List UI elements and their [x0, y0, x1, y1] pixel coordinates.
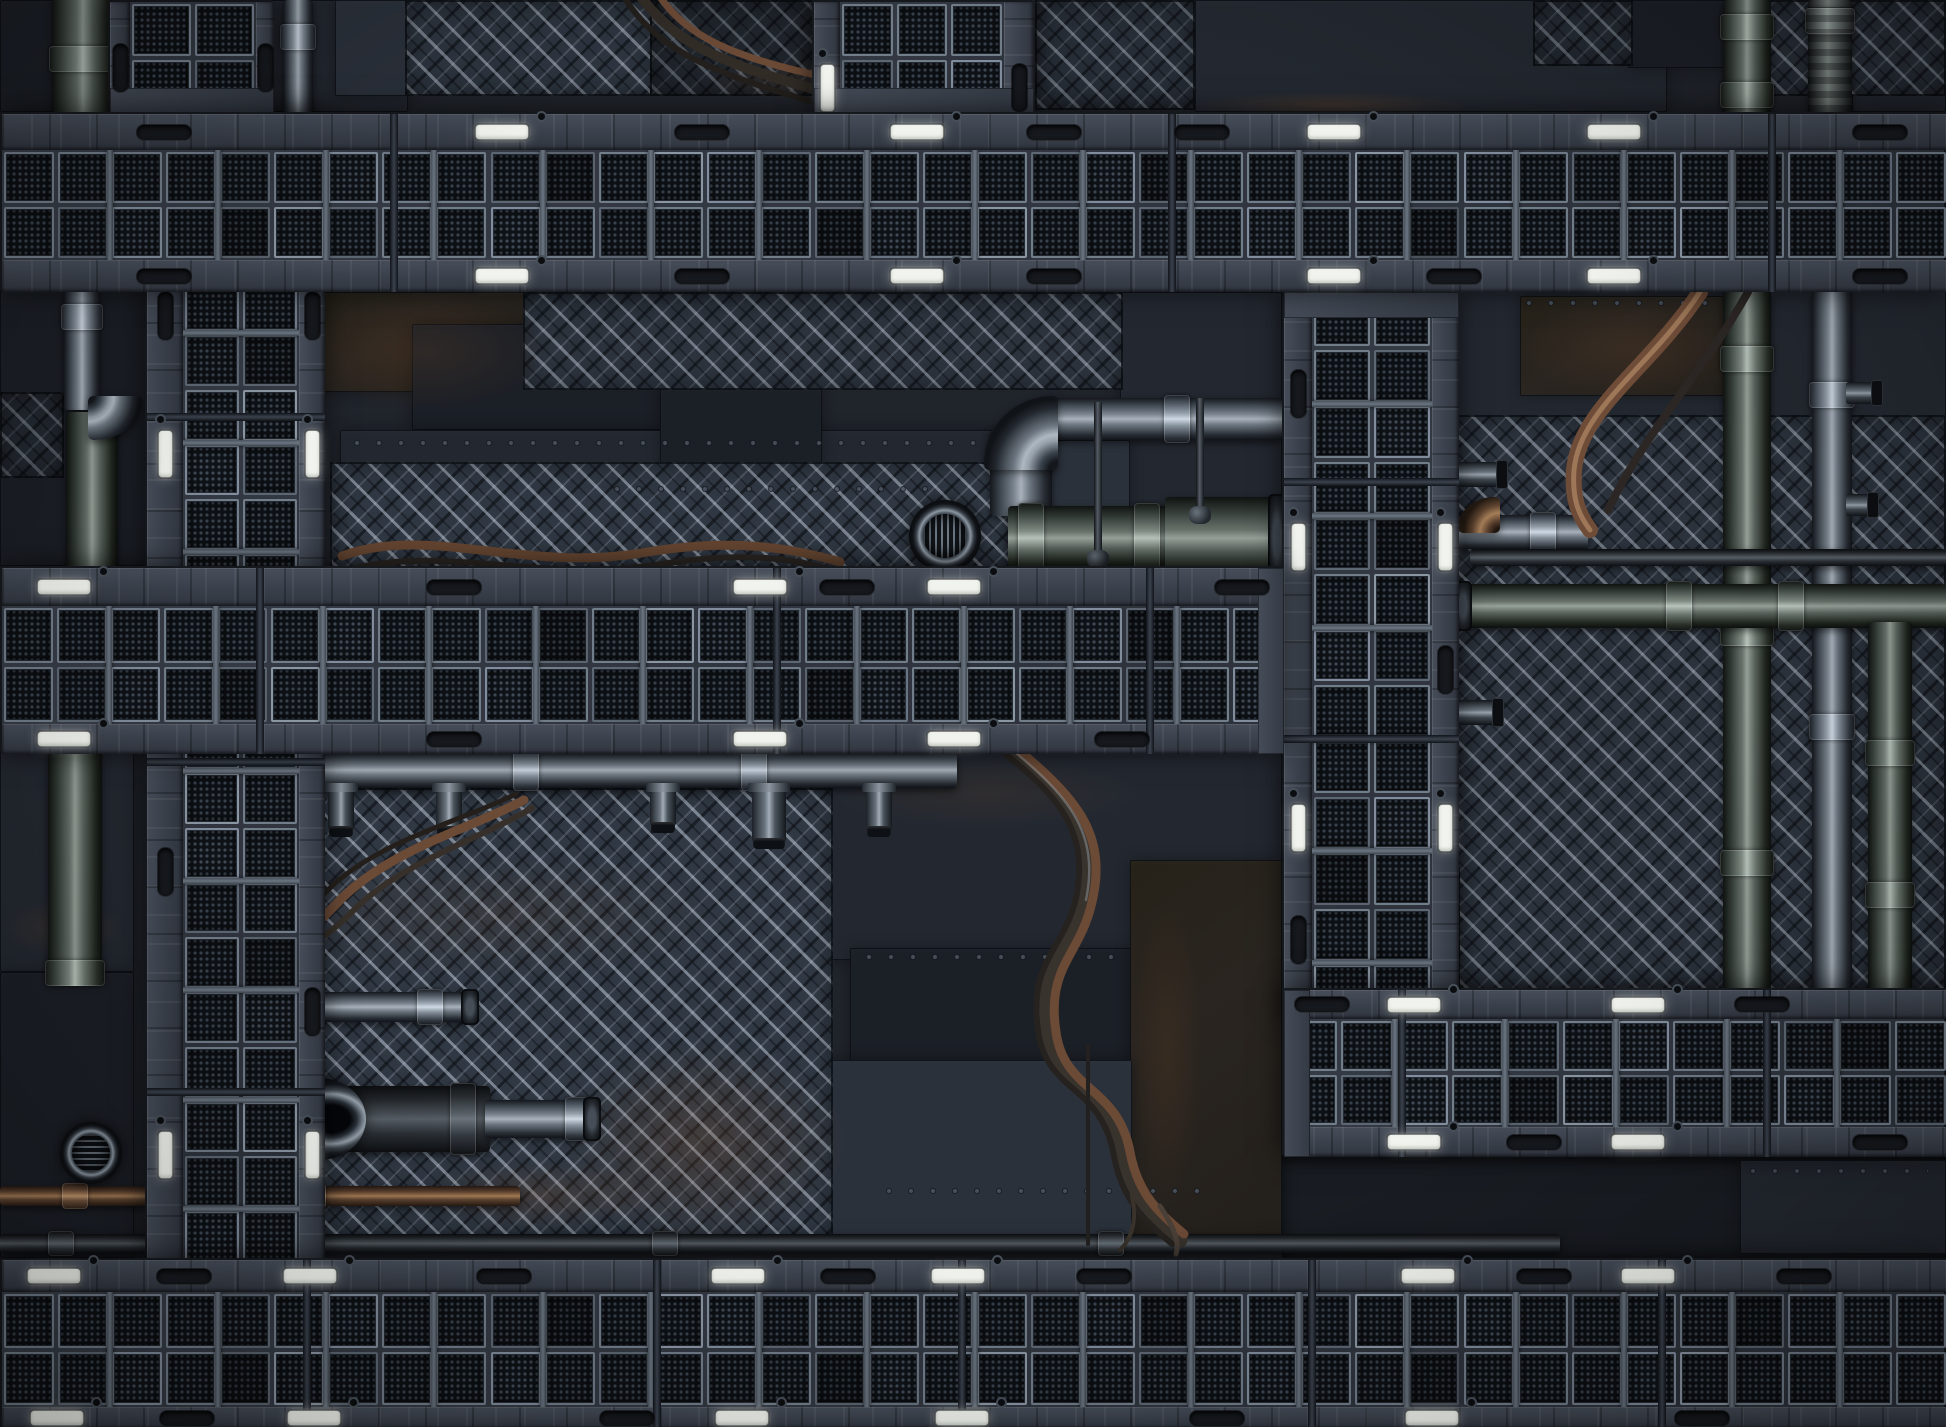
- mesh-grate-cell: [112, 1294, 162, 1348]
- mesh-grate-cell: [545, 152, 595, 203]
- module-seam: [958, 1260, 966, 1427]
- walkway-end-rail: [110, 88, 274, 114]
- mesh-grate-cell: [1193, 207, 1243, 258]
- mesh-grate-cell: [57, 667, 106, 722]
- mesh-grate-cell: [1409, 207, 1459, 258]
- mesh-grate-cell: [58, 1352, 108, 1406]
- mesh-grate-cell: [1314, 350, 1370, 402]
- mesh-grate-cell: [545, 207, 595, 258]
- mesh-grate-cell: [491, 1352, 541, 1406]
- mesh-grate-cell: [1085, 152, 1135, 203]
- panel-divider: [1513, 1292, 1519, 1407]
- recessed-slot: [427, 732, 481, 747]
- mesh-grate-cell: [328, 207, 378, 258]
- mesh-grate-cell: [1193, 152, 1243, 203]
- recessed-slot: [1675, 1411, 1729, 1426]
- panel-divider: [323, 150, 329, 260]
- light-bar: [928, 580, 980, 594]
- mesh-grate-cell: [1355, 1352, 1405, 1406]
- mesh-grate-cell: [328, 1352, 378, 1406]
- panel-divider: [1613, 1019, 1619, 1127]
- module-seam: [1658, 1260, 1666, 1427]
- mesh-grate-cell: [1374, 685, 1430, 737]
- mesh-grate-cell: [869, 1294, 919, 1348]
- light-bar: [476, 125, 528, 139]
- light-bar: [1622, 1269, 1674, 1283]
- module-seam: [1168, 114, 1176, 292]
- light-bar: [1439, 805, 1452, 851]
- panel-divider: [1188, 150, 1194, 260]
- recessed-slot: [1291, 916, 1306, 964]
- mesh-grate-cell: [243, 883, 297, 934]
- light-bar: [159, 431, 172, 477]
- walkway-end-rail: [814, 88, 1034, 114]
- mesh-grate-cell: [1784, 1021, 1835, 1071]
- mesh-grate-cell: [951, 4, 1002, 56]
- mesh-grate-cell: [132, 4, 191, 56]
- mesh-grate-cell: [1464, 207, 1514, 258]
- mesh-grate-cell: [243, 1211, 297, 1262]
- panel-divider: [1837, 150, 1843, 260]
- mesh-grate-cell: [1072, 608, 1121, 663]
- mesh-grate-cell: [436, 1352, 486, 1406]
- mesh-grate-cell: [111, 608, 160, 663]
- light-bar: [1292, 805, 1305, 851]
- light-bar: [821, 65, 834, 111]
- mesh-grate-cell: [185, 992, 239, 1043]
- module-seam: [653, 1260, 661, 1427]
- recessed-slot: [1438, 646, 1453, 694]
- mesh-grate-cell: [869, 207, 919, 258]
- mesh-grate-cell: [58, 207, 108, 258]
- mesh-grate-cell: [112, 207, 162, 258]
- mesh-grate-cell: [1193, 1352, 1243, 1406]
- mesh-grate-cell: [1788, 152, 1838, 203]
- mesh-grate-cell: [185, 335, 239, 386]
- mesh-grate-cell: [1314, 909, 1370, 961]
- light-bar: [1308, 269, 1360, 283]
- mesh-grate-cell: [977, 152, 1027, 203]
- mesh-grate-cell: [1314, 518, 1370, 570]
- panel-divider: [183, 1097, 299, 1103]
- mesh-grate-cell: [243, 499, 297, 550]
- mesh-grate-cell: [243, 992, 297, 1043]
- module-seam: [303, 1260, 311, 1427]
- mesh-grate-cell: [977, 1352, 1027, 1406]
- recessed-slot: [305, 292, 320, 340]
- mesh-grate-cell: [1842, 1294, 1892, 1348]
- recessed-slot: [1295, 997, 1349, 1012]
- light-bar: [28, 1269, 80, 1283]
- mesh-grate-cell: [1031, 207, 1081, 258]
- mesh-grate-cell: [1072, 667, 1121, 722]
- light-bar: [891, 269, 943, 283]
- mesh-grate-cell: [436, 1294, 486, 1348]
- mesh-grate-cell: [842, 4, 893, 56]
- mesh-grate-cell: [431, 667, 480, 722]
- mesh-grate-cell: [599, 1352, 649, 1406]
- mesh-grate-cell: [1673, 1021, 1724, 1071]
- mesh-grate-cell: [220, 152, 270, 203]
- recessed-slot: [157, 1269, 211, 1284]
- mesh-grate-cell: [325, 667, 374, 722]
- mesh-grate-cell: [111, 667, 160, 722]
- mesh-grate-cell: [545, 1352, 595, 1406]
- mesh-grate-cell: [1355, 152, 1405, 203]
- light-bar: [1612, 998, 1664, 1012]
- panel-divider: [1404, 1292, 1410, 1407]
- mesh-grate-cell: [185, 445, 239, 496]
- recessed-slot: [821, 1269, 875, 1284]
- panel-divider: [1837, 1292, 1843, 1407]
- mesh-grate-cell: [1895, 1021, 1946, 1071]
- light-bar: [306, 431, 319, 477]
- mesh-grate-cell: [977, 1294, 1027, 1348]
- module-seam: [147, 758, 325, 766]
- module-seam: [147, 1088, 325, 1096]
- mesh-grate-cell: [1341, 1075, 1392, 1125]
- mesh-grate-cell: [1179, 608, 1228, 663]
- recessed-slot: [1190, 1411, 1244, 1426]
- recessed-slot: [1517, 1269, 1571, 1284]
- panel-divider: [320, 606, 326, 724]
- recessed-slot: [1507, 1135, 1561, 1150]
- recessed-slot: [1853, 125, 1907, 140]
- panel-divider: [183, 549, 299, 555]
- mesh-grate-cell: [1680, 152, 1730, 203]
- mesh-grate-cell: [243, 1102, 297, 1153]
- light-bar: [734, 580, 786, 594]
- mesh-grate-cell: [1301, 207, 1351, 258]
- mesh-grate-cell: [164, 667, 213, 722]
- recessed-slot: [1427, 269, 1481, 284]
- mesh-grate-cell: [58, 152, 108, 203]
- mesh-grate-cell: [1518, 1352, 1568, 1406]
- mesh-grate-cell: [1734, 1294, 1784, 1348]
- mesh-grate-cell: [436, 152, 486, 203]
- mesh-grate-cell: [491, 152, 541, 203]
- mesh-grate-cell: [185, 1156, 239, 1207]
- mesh-grate-cell: [1031, 1352, 1081, 1406]
- light-bar: [712, 1269, 764, 1283]
- mesh-grate-cell: [1374, 574, 1430, 626]
- mesh-grate-cell: [4, 152, 54, 203]
- mesh-grate-cell: [1374, 630, 1430, 682]
- mesh-grate-cell: [1314, 406, 1370, 458]
- mesh-grate-cell: [707, 152, 757, 203]
- mesh-grate-cell: [538, 608, 587, 663]
- mesh-grate-cell: [1314, 574, 1370, 626]
- walkway-bottom-horizontal: [0, 1258, 1946, 1427]
- mesh-grate-cell: [1518, 1294, 1568, 1348]
- mesh-grate-cell: [1680, 1294, 1730, 1348]
- panel-divider: [1724, 1019, 1730, 1127]
- mesh-grate-cell: [112, 1352, 162, 1406]
- panel-divider: [648, 150, 654, 260]
- module-seam: [147, 413, 325, 421]
- recessed-slot: [1735, 997, 1789, 1012]
- mesh-grate-cell: [912, 608, 961, 663]
- mesh-grate-cell: [645, 608, 694, 663]
- mesh-grate-cell: [599, 207, 649, 258]
- mesh-grate-cell: [4, 608, 53, 663]
- mesh-grate-cell: [1247, 1294, 1297, 1348]
- mesh-grate-cell: [1193, 1294, 1243, 1348]
- module-seam: [1763, 990, 1771, 1157]
- mesh-grate-cell: [761, 1294, 811, 1348]
- panel-divider: [1296, 150, 1302, 260]
- mesh-grate-cell: [220, 1294, 270, 1348]
- panel-divider: [215, 1292, 221, 1407]
- recessed-slot: [1291, 370, 1306, 418]
- recessed-slot: [1027, 269, 1081, 284]
- mesh-grate-cell: [4, 667, 53, 722]
- panel-divider: [183, 440, 299, 446]
- mesh-grate-cell: [1896, 152, 1946, 203]
- mesh-grate-cell: [185, 937, 239, 988]
- mesh-grate-cell: [1729, 1021, 1780, 1071]
- mesh-grate-cell: [1409, 1294, 1459, 1348]
- mesh-grate-cell: [1734, 1352, 1784, 1406]
- mesh-grate-cell: [1507, 1021, 1558, 1071]
- mesh-grate-cell: [1452, 1075, 1503, 1125]
- mesh-grate-cell: [1618, 1021, 1669, 1071]
- mesh-grate-cell: [1896, 1294, 1946, 1348]
- walkway-top-horizontal: [0, 112, 1946, 290]
- panel-divider: [1296, 1292, 1302, 1407]
- panel-divider: [1174, 606, 1180, 724]
- mesh-grate-cell: [1729, 1075, 1780, 1125]
- panel-divider: [1312, 960, 1432, 966]
- mesh-grate-cell: [645, 667, 694, 722]
- mesh-grate-cell: [1788, 1352, 1838, 1406]
- panel-divider: [1621, 150, 1627, 260]
- panel-divider: [426, 606, 432, 724]
- panel-divider: [961, 606, 967, 724]
- mesh-grate-cell: [815, 207, 865, 258]
- mesh-grate-cell: [1734, 207, 1784, 258]
- mesh-grate-cell: [815, 1294, 865, 1348]
- light-bar: [1588, 125, 1640, 139]
- mesh-grate-cell: [1563, 1075, 1614, 1125]
- mesh-grate-cell: [592, 667, 641, 722]
- light-bar: [1612, 1135, 1664, 1149]
- walkway-top-module-left: [108, 0, 272, 112]
- panel-divider: [106, 606, 112, 724]
- mesh-grate-cell: [274, 1352, 324, 1406]
- mesh-grate-cell: [1374, 518, 1430, 570]
- mesh-grate-cell: [1085, 1294, 1135, 1348]
- mesh-grate-cell: [1626, 152, 1676, 203]
- mesh-grate-cell: [966, 608, 1015, 663]
- mesh-grate-cell: [1314, 685, 1370, 737]
- mesh-grate-cell: [1842, 207, 1892, 258]
- mesh-grate-cell: [328, 152, 378, 203]
- panel-divider: [183, 987, 299, 993]
- panel-divider: [183, 878, 299, 884]
- mesh-grate-cell: [1085, 1352, 1135, 1406]
- light-bar: [38, 580, 90, 594]
- mesh-grate-cell: [1626, 207, 1676, 258]
- mesh-grate-cell: [1680, 1352, 1730, 1406]
- panel-divider: [1080, 150, 1086, 260]
- mesh-grate-cell: [220, 207, 270, 258]
- mesh-grate-cell: [1179, 667, 1228, 722]
- mesh-grate-cell: [195, 4, 254, 56]
- recessed-slot: [1027, 125, 1081, 140]
- mesh-grate-cell: [599, 152, 649, 203]
- light-bar: [284, 1269, 336, 1283]
- mesh-grate-cell: [1374, 406, 1430, 458]
- walkway-rail: [2, 260, 1946, 292]
- mesh-grate-cell: [485, 608, 534, 663]
- mesh-grate-cell: [897, 4, 948, 56]
- mesh-grate-cell: [271, 608, 320, 663]
- module-seam: [773, 568, 781, 754]
- light-bar: [716, 1411, 768, 1425]
- panel-divider: [1392, 1019, 1398, 1127]
- panel-divider: [1312, 401, 1432, 407]
- recessed-slot: [1777, 1269, 1831, 1284]
- mesh-grate-cell: [1374, 853, 1430, 905]
- mesh-grate-cell: [1314, 462, 1370, 514]
- panel-divider: [431, 1292, 437, 1407]
- module-seam: [1284, 735, 1459, 743]
- light-bar: [1439, 524, 1452, 570]
- light-bar: [891, 125, 943, 139]
- recessed-slot: [305, 988, 320, 1036]
- panel-divider: [213, 606, 219, 724]
- module-seam: [1768, 114, 1776, 292]
- mesh-grate-cell: [185, 883, 239, 934]
- mesh-grate-cell: [1896, 1352, 1946, 1406]
- mesh-grate-cell: [1374, 462, 1430, 514]
- mesh-grate-cell: [328, 1294, 378, 1348]
- mesh-grate-cell: [1374, 797, 1430, 849]
- panel-divider: [1513, 150, 1519, 260]
- mesh-grate-cell: [1314, 741, 1370, 793]
- light-bar: [936, 1411, 988, 1425]
- light-bar: [1406, 1411, 1458, 1425]
- mesh-grate-cell: [761, 1352, 811, 1406]
- recessed-slot: [1012, 64, 1027, 112]
- recessed-slot: [113, 44, 128, 92]
- walkway-rail: [2, 724, 1284, 754]
- mesh-grate-cell: [166, 1352, 216, 1406]
- walkway-rail: [2, 568, 1284, 606]
- module-seam: [1146, 568, 1154, 754]
- mesh-grate-cell: [1673, 1075, 1724, 1125]
- mesh-grate-cell: [545, 1294, 595, 1348]
- panel-divider: [1312, 513, 1432, 519]
- panel-divider: [747, 606, 753, 724]
- panel-divider: [1312, 848, 1432, 854]
- mesh-grate-cell: [4, 1294, 54, 1348]
- mesh-grate-cell: [1464, 1294, 1514, 1348]
- walkway-end-rail: [1284, 292, 1459, 318]
- mesh-grate-cell: [1374, 909, 1430, 961]
- light-bar: [1388, 1135, 1440, 1149]
- mesh-grate-cell: [274, 1294, 324, 1348]
- recessed-slot: [1853, 269, 1907, 284]
- mesh-grate-cell: [1085, 207, 1135, 258]
- mesh-grate-cell: [1139, 152, 1189, 203]
- panel-divider: [640, 606, 646, 724]
- panel-divider: [972, 1292, 978, 1407]
- recessed-slot: [1095, 732, 1149, 747]
- mesh-grate-cell: [805, 667, 854, 722]
- mesh-grate-cell: [1314, 797, 1370, 849]
- mesh-grate-cell: [1314, 853, 1370, 905]
- mesh-grate-cell: [243, 1156, 297, 1207]
- mesh-grate-cell: [1680, 207, 1730, 258]
- mesh-grate-cell: [859, 667, 908, 722]
- mesh-grate-cell: [112, 152, 162, 203]
- mesh-grate-cell: [698, 667, 747, 722]
- mesh-grate-cell: [869, 152, 919, 203]
- light-bar: [1588, 269, 1640, 283]
- mesh-grate-cell: [761, 152, 811, 203]
- mesh-grate-cell: [1842, 152, 1892, 203]
- mesh-grate-cell: [1842, 1352, 1892, 1406]
- mesh-grate-cell: [1618, 1075, 1669, 1125]
- mesh-grate-cell: [243, 937, 297, 988]
- recessed-slot: [137, 269, 191, 284]
- recessed-slot: [158, 848, 173, 896]
- panel-divider: [183, 330, 299, 336]
- industrial-deck-battle-map: [0, 0, 1946, 1427]
- mesh-grate-cell: [1788, 1294, 1838, 1348]
- mesh-grate-cell: [869, 1352, 919, 1406]
- mesh-grate-cell: [707, 1352, 757, 1406]
- light-bar: [1292, 524, 1305, 570]
- light-bar: [1388, 998, 1440, 1012]
- mesh-grate-cell: [58, 1294, 108, 1348]
- recessed-slot: [160, 1411, 214, 1426]
- recessed-slot: [158, 292, 173, 340]
- mesh-grate-cell: [1341, 1021, 1392, 1071]
- mesh-grate-cell: [271, 667, 320, 722]
- mesh-grate-cell: [1139, 1294, 1189, 1348]
- mesh-grate-cell: [966, 667, 1015, 722]
- mesh-grate-cell: [243, 773, 297, 824]
- light-bar: [288, 1411, 340, 1425]
- mesh-grate-cell: [185, 828, 239, 879]
- panel-divider: [1729, 150, 1735, 260]
- mesh-grate-cell: [4, 1352, 54, 1406]
- panel-divider: [533, 606, 539, 724]
- mesh-grate-cell: [1572, 1294, 1622, 1348]
- light-bar: [31, 1411, 83, 1425]
- mesh-grate-cell: [1839, 1021, 1890, 1071]
- light-bar: [476, 269, 528, 283]
- mesh-grate-cell: [382, 1352, 432, 1406]
- mesh-grate-cell: [4, 207, 54, 258]
- panel-divider: [107, 1292, 113, 1407]
- recessed-slot: [600, 1411, 654, 1426]
- mesh-grate-cell: [815, 1352, 865, 1406]
- mesh-grate-cell: [1518, 207, 1568, 258]
- walkway-middle-horizontal: [0, 566, 1282, 752]
- mesh-grate-cell: [491, 207, 541, 258]
- mesh-grate-cell: [1895, 1075, 1946, 1125]
- mesh-grate-cell: [166, 207, 216, 258]
- light-bar: [38, 732, 90, 746]
- recessed-slot: [477, 1269, 531, 1284]
- walkway-end-rail: [1258, 568, 1284, 754]
- panel-divider: [1080, 1292, 1086, 1407]
- mesh-grate-cell: [243, 445, 297, 496]
